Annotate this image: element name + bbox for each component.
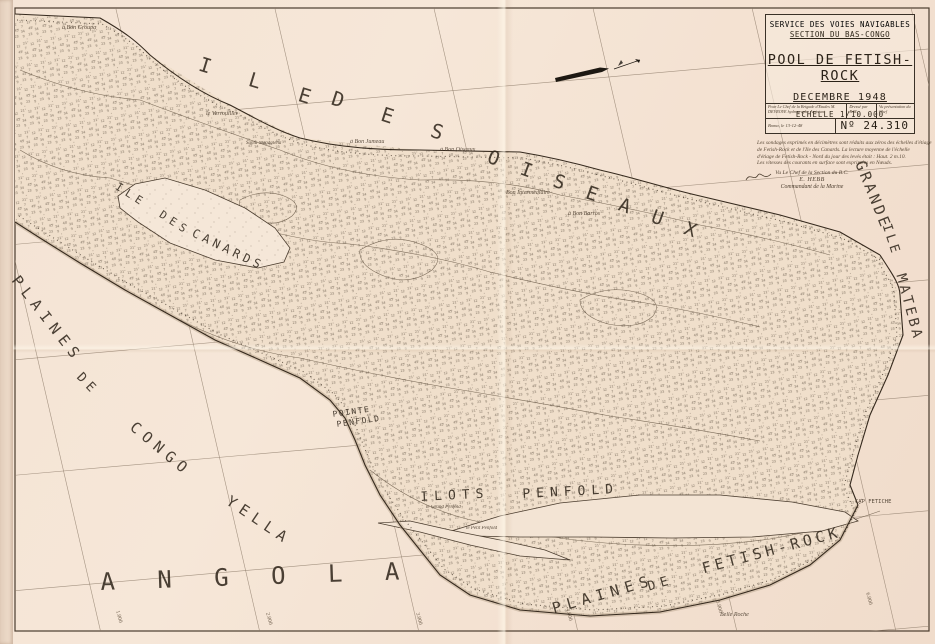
- point-label-magdalena: Santa Magdalena: [246, 141, 281, 146]
- point-label-bon-intermediaire: Bon Intermédiaire: [506, 190, 550, 196]
- point-label-cap-fetiche: CAP FETICHE: [855, 499, 891, 505]
- vertical-fold-crease: [497, 0, 513, 644]
- sig-right: Vu présentation du Chef: [879, 104, 911, 114]
- service-line-2: SECTION DU BAS-CONGO: [766, 30, 914, 39]
- survey-notes: Les sondages exprimés en décimètres sont…: [757, 140, 933, 167]
- note-line-2: de Fetish-Rock et de l'Ile des Canards. …: [757, 147, 933, 154]
- map-date: DECEMBRE 1948: [766, 92, 914, 103]
- point-label-bon-oiseaux: à Bon Oiseaux: [440, 147, 475, 153]
- signature-cell-right: Vu présentation du Chef: [877, 104, 914, 118]
- signature-cell-left: Pour Le Chef de la Brigade d'Etudes M. D…: [766, 104, 847, 118]
- point-label-bon-groupa: à Bon Groupa: [62, 25, 96, 31]
- approval-line-3: Commandant de la Marine: [744, 184, 880, 190]
- note-line-4: Les vitesses des courants en surface son…: [757, 160, 933, 167]
- point-label-belle-roche: Belle Roche: [720, 612, 749, 618]
- signature-table: Pour Le Chef de la Brigade d'Etudes M. D…: [766, 103, 914, 133]
- note-line-1: Les sondages exprimés en décimètres sont…: [757, 140, 933, 147]
- sig-mid: Dressé par B.M.: [849, 104, 867, 114]
- title-block: SERVICE DES VOIES NAVIGABLES SECTION DU …: [765, 14, 915, 134]
- point-label-petit-penfold: le Petit Penfold: [466, 526, 497, 531]
- map-title: POOL DE FETISH-ROCK: [766, 52, 914, 84]
- place-date: Boma, le 13-12-48: [766, 119, 836, 133]
- approval-block: Vu Le Chef de la Section du B.C. E. HEBB…: [744, 170, 880, 190]
- sheet-number: Nº 24.310: [836, 119, 914, 133]
- point-label-verrouiller: le Verrouiller: [206, 111, 238, 117]
- signature-cell-mid: Dressé par B.M.: [847, 104, 877, 118]
- point-label-bon-barros: à Bon Barros: [568, 211, 600, 217]
- ship-symbol: [555, 59, 640, 82]
- point-label-grand-penfold: le Grand Penfold: [426, 505, 461, 510]
- horizontal-fold-crease: [0, 344, 935, 353]
- point-label-bon-jumeau: à Bon Jumeau: [350, 139, 384, 145]
- torn-paper-edge: [0, 0, 13, 644]
- sig-left-line2: hydrographe Assistant: [788, 109, 826, 114]
- scanned-map-sheet: 21 7 34 9 12 45 23: [0, 0, 935, 644]
- service-line-1: SERVICE DES VOIES NAVIGABLES: [766, 20, 914, 29]
- signature-mark: [744, 170, 774, 184]
- north-arrow-icon: [635, 59, 640, 63]
